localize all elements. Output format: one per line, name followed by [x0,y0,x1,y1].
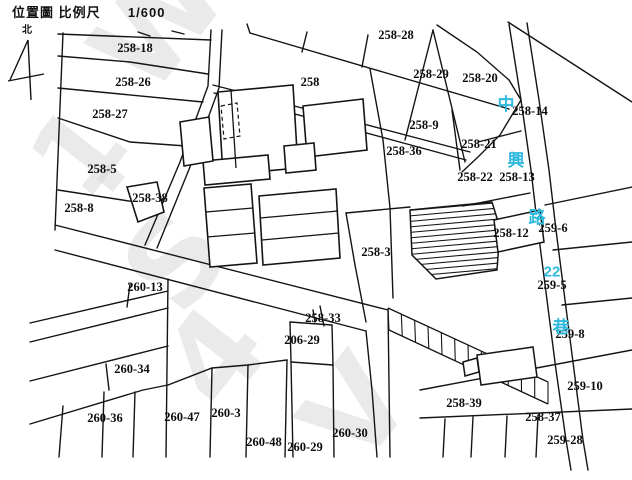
north-arrow [8,74,44,81]
parcel-label-258-5: 258-5 [87,162,116,176]
parcel-label-258-28: 258-28 [378,28,413,42]
parcel-label-258-14: 258-14 [512,104,548,118]
street-name-char: 中 [498,94,515,114]
parcel-label-258: 258 [301,75,320,89]
street-name-char: 興 [508,150,525,170]
building-footprint [463,358,479,376]
parcel-label-258-27: 258-27 [92,107,127,121]
building-footprint [204,184,257,267]
parcel-label-260-3: 260-3 [211,406,240,420]
parcel-label-258-21: 258-21 [461,137,496,151]
parcel-boundary-line [59,406,63,457]
street-name-char: 22 [544,263,561,280]
parcel-boundary-line [452,110,460,170]
hatched-band-rung [415,320,416,342]
parcel-label-259-28: 259-28 [547,433,582,447]
parcel-label-260-30: 260-30 [332,426,367,440]
north-label: 北 [22,23,32,36]
building-footprint [259,189,340,265]
street-name-char: 巷 [552,317,571,337]
hatched-band-rung [455,339,456,361]
parcel-boundary-line [437,25,521,100]
map-canvas: W1·S4V258-18258-28258-29258-20258-262582… [0,0,632,480]
parcel-label-258-13: 258-13 [499,170,534,184]
cadastral-map-stage: 位置圖 比例尺 1/600 W1·S4V258-18258-28258-2925… [0,0,632,480]
parcel-label-258-18: 258-18 [117,41,152,55]
parcel-label-258-38: 258-38 [132,191,167,205]
parcel-boundary-line [553,242,632,250]
parcel-label-258-37: 258-37 [525,410,560,424]
parcel-label-258-22: 258-22 [457,170,492,184]
hatch-line [403,191,505,200]
hatch-line [403,263,505,272]
parcel-boundary-line [370,69,393,298]
hatch-line [403,224,505,233]
parcel-boundary-line [527,23,588,470]
hatch-line [403,246,505,255]
hatch-line [403,235,505,244]
parcel-boundary-line [346,213,366,322]
parcel-label-258-29: 258-29 [413,67,448,81]
map-title: 位置圖 比例尺 1/600 [12,2,165,21]
parcel-label-258-8: 258-8 [64,201,93,215]
hatched-subject-parcel [403,191,505,277]
parcel-label-260-47: 260-47 [164,410,199,424]
building-footprint [284,143,316,173]
street-name-char: 路 [529,207,547,227]
map-title-text: 位置圖 [12,5,54,20]
hatch-line [403,241,505,250]
parcel-label-260-48: 260-48 [246,435,281,449]
hatch-line [403,219,505,228]
north-arrow [28,40,31,100]
parcel-boundary-line [333,365,334,457]
parcel-boundary-line [346,207,410,213]
parcel-label-260-13: 260-13 [127,280,162,294]
parcel-label-258-12: 258-12 [493,226,528,240]
parcel-label-258-3: 258-3 [361,245,390,259]
parcel-label-259-10: 259-10 [567,379,602,393]
parcel-boundary-line [332,325,333,365]
parcel-boundary-line [30,291,168,323]
hatch-line [403,230,505,239]
north-arrow [10,40,28,80]
parcel-boundary-line [471,417,473,457]
scale-label: 比例尺 [59,5,101,20]
parcel-boundary-line [545,187,632,205]
parcel-label-258-33: 258-33 [305,311,340,325]
hatched-band-rung [428,327,429,349]
hatch-line [403,213,505,222]
parcel-boundary-line [362,35,368,67]
parcel-boundary-line [562,298,632,305]
parcel-boundary-line [505,416,507,457]
parcel-boundary-line [443,419,445,457]
parcel-boundary-line [247,24,250,33]
parcel-boundary-line [106,364,109,390]
parcel-label-260-36: 260-36 [87,411,122,425]
parcel-boundary-line [133,392,135,457]
parcel-label-260-34: 260-34 [114,362,150,376]
parcel-boundary-line [508,22,632,102]
parcel-boundary-line [433,30,465,162]
building-footprint [180,117,213,166]
parcel-label-260-29: 260-29 [287,440,322,454]
parcel-label-258-20: 258-20 [462,71,497,85]
hatched-band-rung [441,333,442,355]
scale-value: 1/600 [128,5,166,20]
hatch-line [403,252,505,261]
hatched-band-rung [401,314,402,336]
parcel-label-258-39: 258-39 [446,396,481,410]
parcel-label-258-26: 258-26 [115,75,150,89]
parcel-label-258-36: 258-36 [386,144,421,158]
watermark-glyph: V [273,331,440,480]
parcel-label-258-9: 258-9 [409,118,438,132]
parcel-label-206-29: 206-29 [284,333,319,347]
